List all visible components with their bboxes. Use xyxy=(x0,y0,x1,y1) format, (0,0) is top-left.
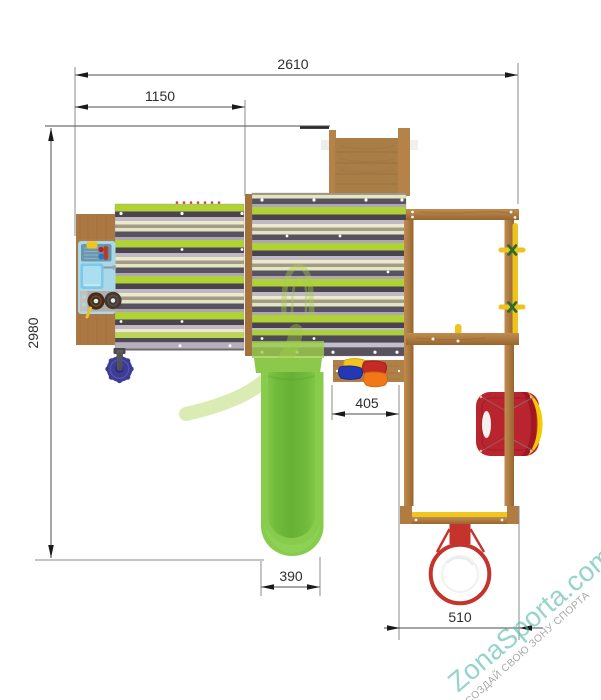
svg-text:2610: 2610 xyxy=(277,56,308,72)
svg-text:405: 405 xyxy=(355,395,379,411)
svg-text:2980: 2980 xyxy=(25,317,41,348)
svg-text:390: 390 xyxy=(279,568,303,584)
svg-text:1150: 1150 xyxy=(145,88,175,104)
svg-text:510: 510 xyxy=(448,609,472,625)
